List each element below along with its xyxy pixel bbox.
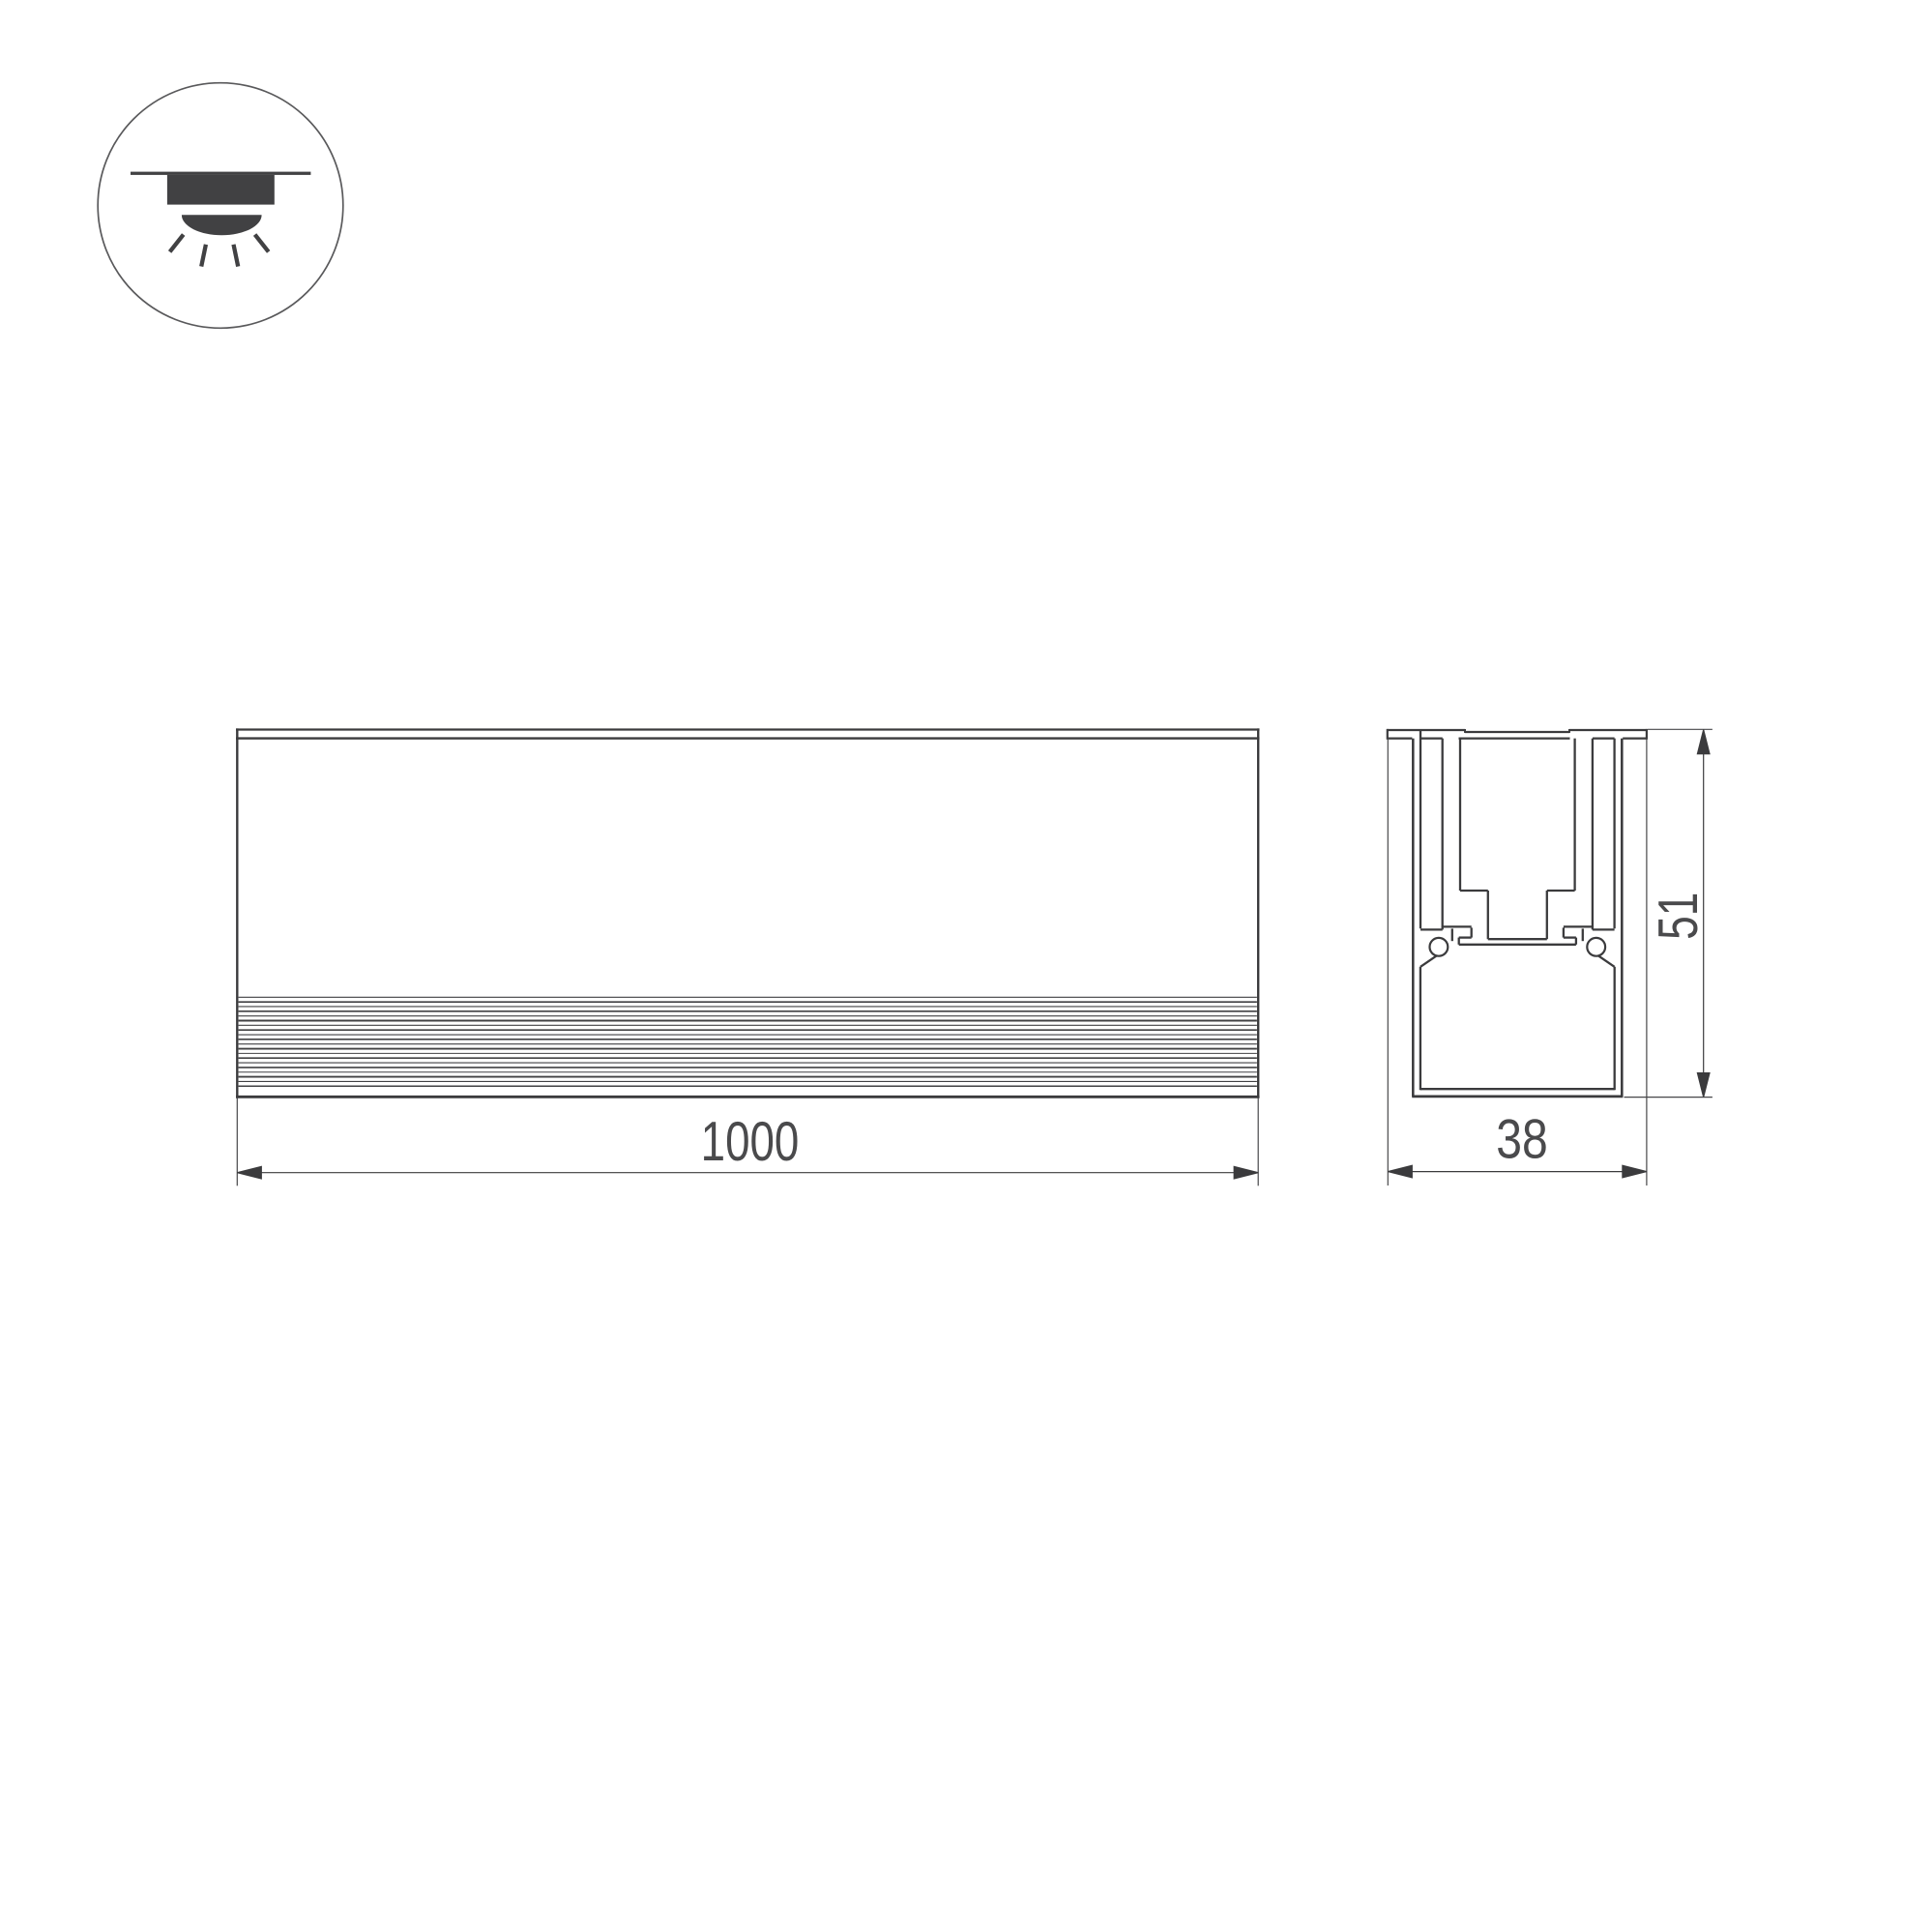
svg-text:38: 38 — [1496, 1109, 1548, 1171]
svg-text:1000: 1000 — [701, 1111, 800, 1173]
svg-text:51: 51 — [1648, 893, 1710, 940]
